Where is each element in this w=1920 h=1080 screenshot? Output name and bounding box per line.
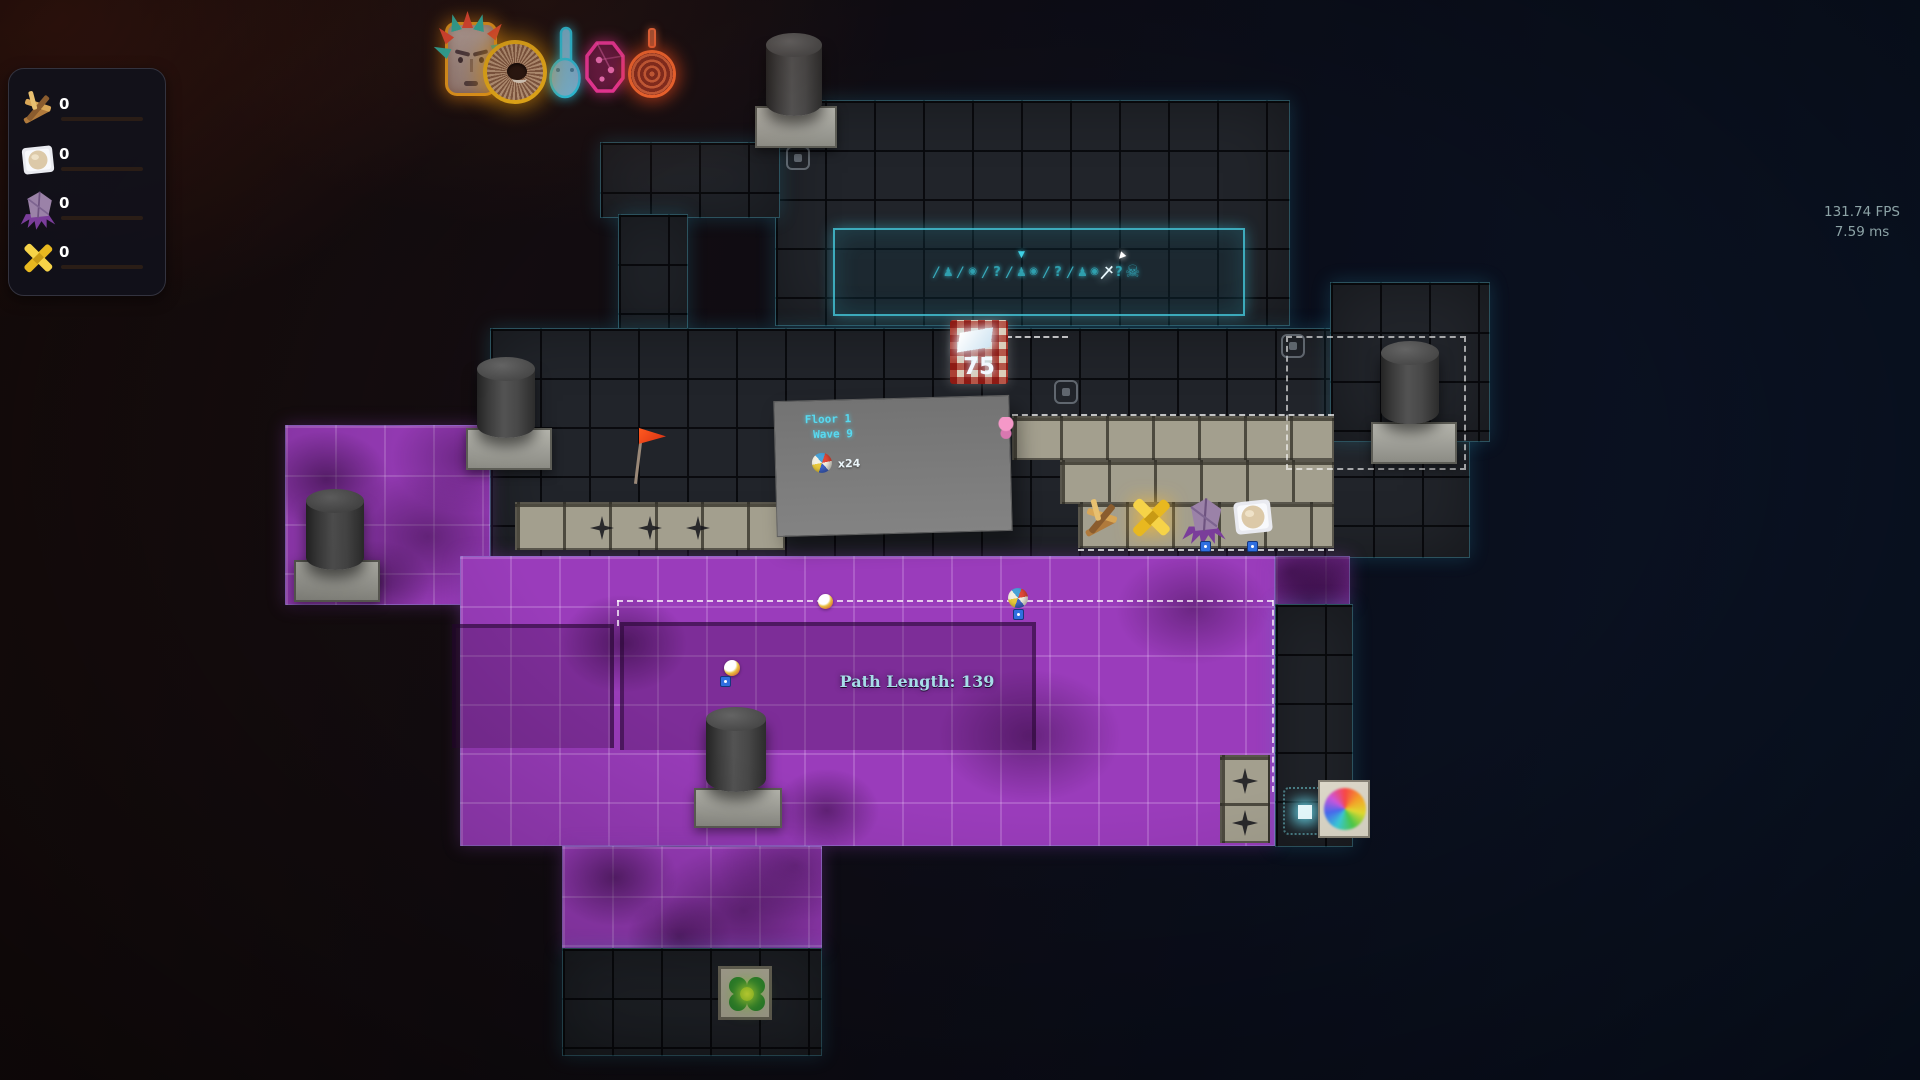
feather-icon	[431, 42, 451, 59]
totem-brow	[455, 49, 471, 57]
resource-row-shard: 0	[9, 186, 165, 236]
totem-brow	[473, 49, 489, 57]
map-dark-arm	[600, 142, 780, 218]
map-purple-bottom	[562, 846, 822, 950]
resource-row-wood: 0	[9, 87, 165, 137]
wave-marker: ▼	[1115, 251, 1126, 262]
wood-sticks-icon	[19, 89, 57, 131]
egg-crate-icon	[19, 139, 57, 181]
map-dark-strip	[618, 214, 688, 330]
map-room-left	[452, 624, 614, 748]
spiral-disc-icon[interactable]	[628, 28, 676, 102]
wave-label: Wave 9	[813, 427, 853, 441]
resource-row-cross: 0	[9, 235, 165, 285]
fps-value: 131.74 FPS	[1806, 203, 1918, 223]
wave-sequence: ∕♟∕◉∕?∕♟▼◉∕?∕♟◉†▼?☠	[930, 252, 1148, 292]
gate-badge-icon	[1281, 334, 1305, 358]
beach-ball-drop	[1008, 588, 1028, 608]
map-purple-right-patch	[1275, 556, 1350, 606]
gold-cross-icon	[19, 237, 57, 279]
route-dash-notch	[617, 600, 619, 626]
route-dash-down	[1272, 600, 1274, 792]
performance-counter: 131.74 FPS 7.59 ms	[1806, 203, 1918, 242]
disc-body	[628, 50, 676, 98]
neon-die-icon[interactable]	[584, 40, 626, 94]
price-value: 75	[950, 354, 1008, 380]
rainbow-disc-tile[interactable]	[1318, 780, 1370, 838]
feather-icon	[447, 13, 462, 32]
book-icon	[957, 327, 993, 352]
ball-count: x24	[838, 457, 861, 471]
wave-icon-orb: ◉	[1028, 267, 1040, 277]
map-dark-bottom-strip	[562, 948, 822, 1056]
floor-label: Floor 1	[805, 412, 852, 426]
count-badge	[1013, 609, 1024, 620]
feather-icon	[487, 20, 506, 40]
resource-value: 0	[59, 243, 69, 261]
pink-flower-enemy	[998, 417, 1014, 439]
tower-pad	[694, 788, 782, 828]
resource-bar	[61, 265, 143, 269]
route-dash-tag	[1006, 336, 1068, 338]
gate-badge-icon	[786, 146, 810, 170]
spawn-portal[interactable]	[718, 966, 772, 1020]
tower-upper-left[interactable]	[477, 368, 535, 438]
frame-time-value: 7.59 ms	[1806, 223, 1918, 243]
beach-ball-icon	[812, 453, 833, 474]
wood-drop[interactable]	[1080, 496, 1124, 546]
feather-icon	[435, 24, 454, 44]
totem-nose	[470, 59, 473, 72]
ball-drop	[818, 594, 833, 609]
price-tag[interactable]: 75	[950, 320, 1008, 384]
tower-bottom[interactable]	[706, 718, 766, 792]
resource-bar	[61, 117, 143, 121]
purple-shard-icon	[19, 188, 57, 230]
wave-icon-enemy: ♟	[1076, 266, 1088, 278]
disc-pin	[648, 28, 656, 48]
game-viewport: ∕♟∕◉∕?∕♟▼◉∕?∕♟◉†▼?☠ 75 Floor 1 Wave 9 x2…	[0, 0, 1920, 1080]
purple-shard-drop[interactable]	[1180, 494, 1228, 546]
wave-icon-enemy: ♟▼	[1015, 266, 1027, 278]
resource-bar	[61, 167, 143, 171]
totem-eye	[479, 57, 484, 63]
shell-smile	[512, 75, 527, 83]
resource-panel: 0 0 0 0	[8, 68, 166, 296]
resource-bar	[61, 216, 143, 220]
neon-hand-icon[interactable]	[548, 26, 582, 100]
count-badge	[720, 676, 731, 687]
resource-value: 0	[59, 95, 69, 113]
egg-crate-drop[interactable]	[1230, 492, 1276, 542]
count-badge	[1200, 541, 1211, 552]
ball-drop	[724, 660, 740, 676]
tower-far-left[interactable]	[306, 500, 364, 570]
resource-row-egg: 0	[9, 137, 165, 187]
wave-icon-orb: ◉	[967, 267, 979, 277]
tower-top[interactable]	[766, 44, 822, 116]
gate-badge-icon	[1054, 380, 1078, 404]
tower-pad	[1371, 422, 1457, 464]
route-dash-mid	[617, 600, 1273, 602]
feather-icon	[473, 13, 488, 32]
totem-eye	[458, 57, 463, 63]
gold-cross-drop[interactable]	[1126, 490, 1176, 545]
resource-value: 0	[59, 145, 69, 163]
path-length-label: Path Length: 139	[812, 672, 1022, 691]
wave-icon-question: ?	[1113, 266, 1125, 279]
floor-info-panel: Floor 1 Wave 9 x24	[773, 395, 1012, 537]
count-badge	[1247, 541, 1258, 552]
shell-wheel-icon[interactable]	[483, 40, 547, 104]
resource-value: 0	[59, 194, 69, 212]
wave-icon-skull: ☠	[1125, 264, 1137, 281]
feather-icon	[462, 11, 473, 28]
wave-marker: ▼	[1018, 251, 1025, 260]
rainbow-disc	[1324, 788, 1366, 830]
portal-clover-icon	[738, 985, 756, 1003]
totem-mouth	[464, 81, 478, 86]
tower-right[interactable]	[1381, 352, 1439, 424]
